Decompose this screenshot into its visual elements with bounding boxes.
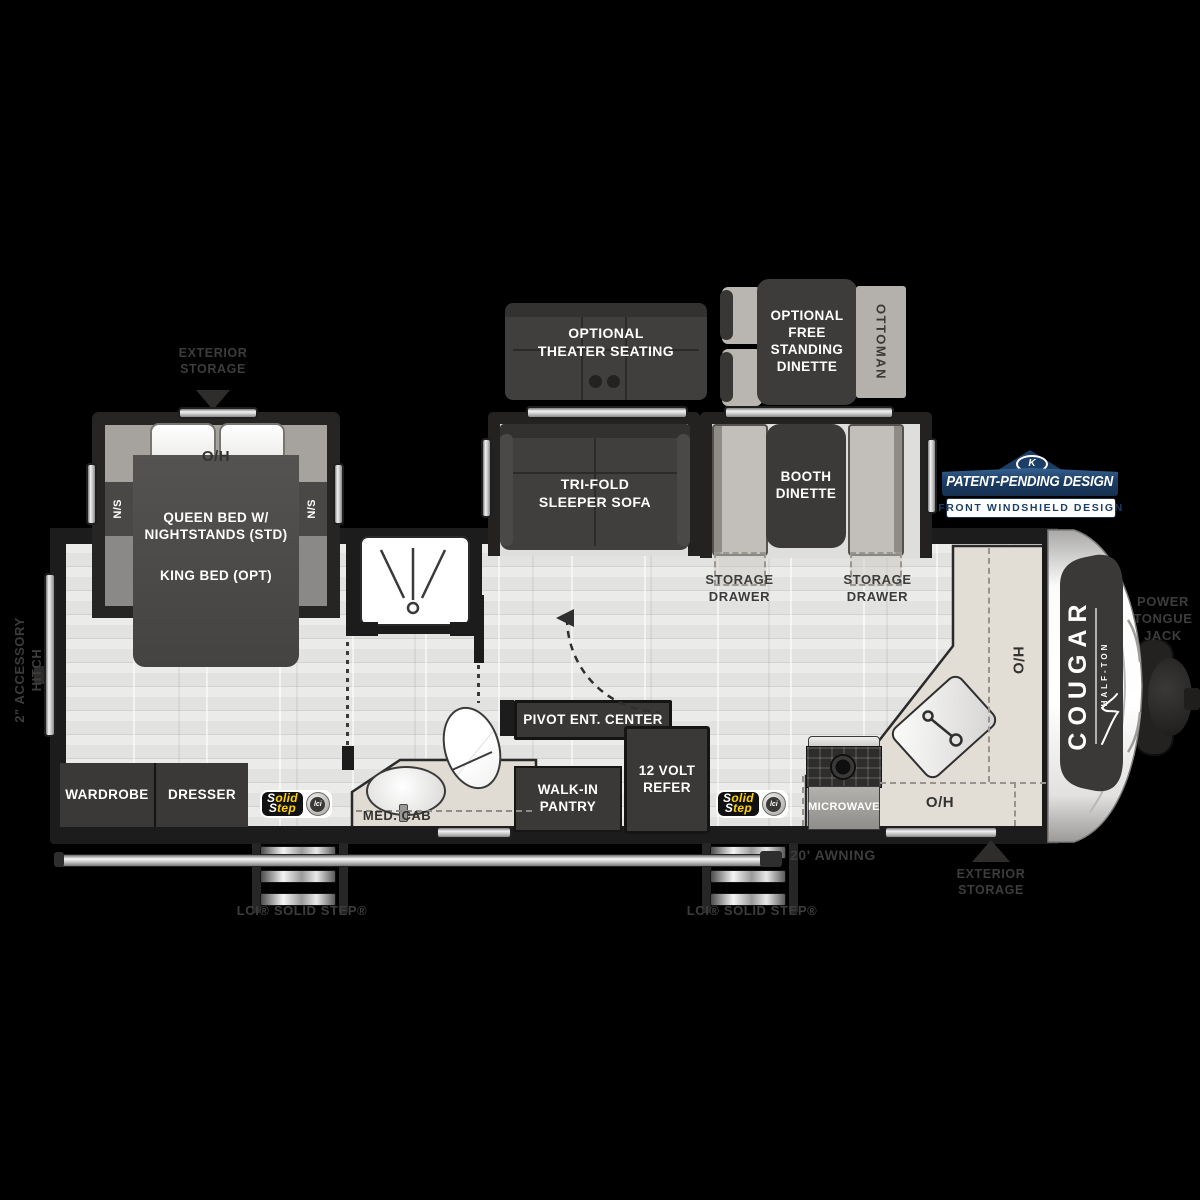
lci-logo-2: lci [762, 792, 786, 816]
jack-label-line2: TONGUE [1134, 611, 1193, 628]
exterior-storage-bottom-line2: STORAGE [958, 882, 1024, 898]
patent-badge: K PATENT-PENDING DESIGN FRONT WINDSHIELD… [942, 450, 1118, 516]
cougar-brand-label: COUGAR [1064, 554, 1092, 794]
exterior-storage-top-line1: EXTERIOR [179, 345, 248, 361]
storage-right-line2: DRAWER [847, 589, 908, 606]
solid-step-logo-bedroom: Solid Step lci [260, 790, 332, 818]
jack-label-line1: POWER [1137, 594, 1189, 611]
floor-plan: 2" ACCESSORY HITCH O/H N/S N/S QUEEN BED… [0, 0, 1200, 1200]
storage-left-line2: DRAWER [709, 589, 770, 606]
exterior-storage-top-label: EXTERIOR STORAGE [160, 345, 266, 378]
solid-step-label-main: LCI® SOLID STEP® [672, 903, 832, 920]
toilet-seat-line [452, 752, 492, 770]
bed-std-label: QUEEN BED W/ NIGHTSTANDS (STD) [141, 510, 291, 544]
kitchen-overhead-label: O/H [898, 794, 982, 811]
solid-step-label-bedroom: LCI® SOLID STEP® [222, 903, 382, 920]
exterior-storage-bottom-label: EXTERIOR STORAGE [936, 866, 1046, 899]
exterior-storage-bottom-line1: EXTERIOR [957, 866, 1026, 882]
jack-label-line3: JACK [1144, 628, 1182, 645]
storage-drawer-right-label: STORAGE DRAWER [830, 572, 925, 606]
overlay-layer [0, 0, 1200, 1200]
badge-banner: PATENT-PENDING DESIGN [942, 468, 1118, 496]
solid-step-word2-line2: Step [723, 804, 754, 814]
entry-door-swing-arc [556, 609, 660, 712]
front-hutch-label: H/O [1010, 631, 1027, 691]
solid-step-logo-kitchen: Solid Step lci [716, 790, 788, 818]
storage-drawer-left-label: STORAGE DRAWER [692, 572, 787, 606]
accessory-hitch-label: 2" ACCESSORY HITCH [0, 595, 59, 745]
badge-subtitle-bar: FRONT WINDSHIELD DESIGN [946, 498, 1116, 518]
solid-step-wordmark: Solid Step [262, 792, 303, 816]
solid-step-wordmark-2: Solid Step [718, 792, 759, 816]
badge-title: PATENT-PENDING DESIGN [947, 474, 1114, 490]
lci-mark-2: lci [766, 797, 781, 812]
storage-left-line1: STORAGE [705, 572, 773, 589]
shower-spray-icon [381, 548, 445, 613]
front-cap [1048, 530, 1142, 842]
power-tongue-jack-label: POWER TONGUE JACK [1126, 594, 1200, 645]
lci-logo: lci [306, 792, 330, 816]
bed-opt-label: KING BED (OPT) [141, 568, 291, 585]
hitch-label-line1: 2" ACCESSORY [12, 617, 29, 723]
storage-right-line1: STORAGE [843, 572, 911, 589]
med-cab-label: MED. CAB [356, 808, 438, 823]
k-letter: K [1028, 459, 1035, 469]
solid-step-word-line2: Step [267, 804, 298, 814]
half-ton-label: HALF-TON [1100, 624, 1112, 724]
bed-overhead-label: O/H [186, 448, 246, 465]
hitch-label-line2: HITCH [29, 649, 46, 692]
awning-label: 20' AWNING [790, 846, 900, 864]
sink-faucet-icon [924, 712, 962, 746]
badge-subtitle: FRONT WINDSHIELD DESIGN [938, 502, 1124, 514]
exterior-storage-top-line2: STORAGE [180, 361, 246, 377]
lci-mark: lci [310, 797, 325, 812]
